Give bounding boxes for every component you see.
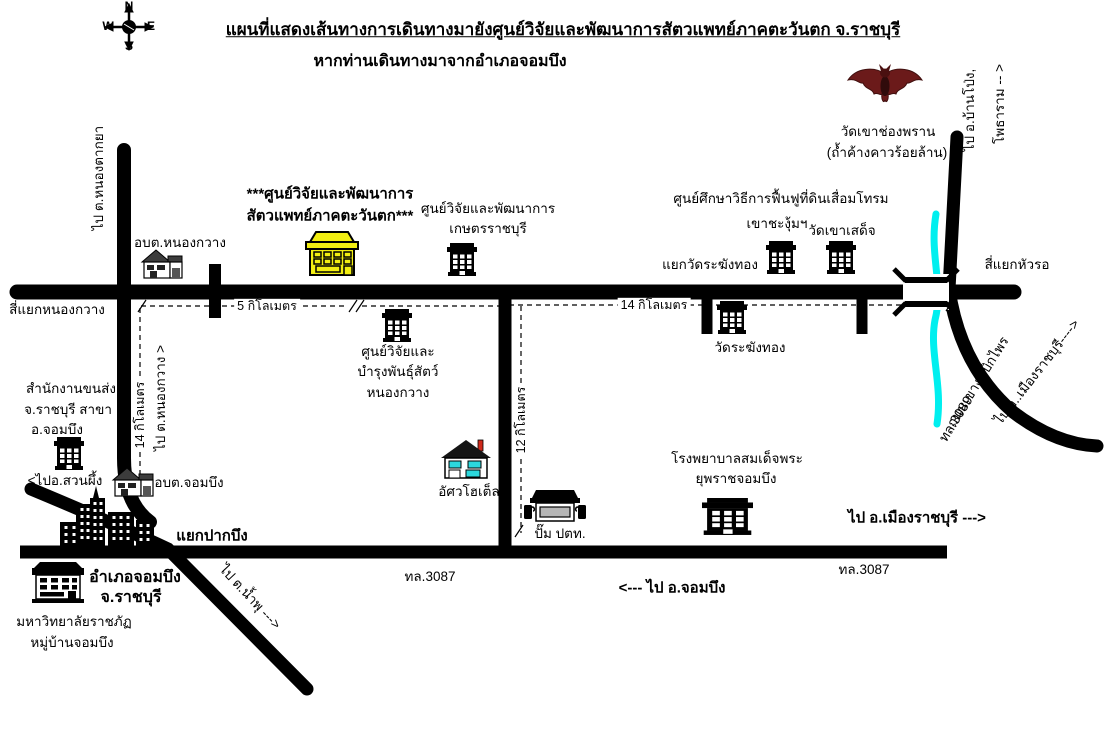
ptt-gas-station-icon xyxy=(524,490,586,521)
livestock-center-label-line2: บำรุงพันธุ์สัตว์ xyxy=(358,364,439,380)
nongkwang-intersection-label: สี่แยกหนองกวาง xyxy=(9,302,105,318)
direction-chombung-label: <--- ไป อ.จอมบึง xyxy=(619,579,726,596)
compass-south-label: S xyxy=(125,40,133,54)
compass-west-label: W xyxy=(102,20,113,34)
vet-center-building-icon xyxy=(306,232,358,275)
compass-north-label: N xyxy=(125,0,134,14)
wat-rakang-building-icon xyxy=(717,301,747,334)
vet-center-label-line1: ***ศูนย์วิจัยและพัฒนาการ xyxy=(247,185,414,202)
wat-rakang-junction-label: แยกวัดระฆังทอง xyxy=(662,257,758,273)
wat-chong-phran-label-line2: (ถ้ำค้างคาวร้อยล้าน) xyxy=(827,145,948,161)
khao-changum-label: เขาชะงุ้มฯ xyxy=(747,216,808,232)
highway-3087-left-label: ทล.3087 xyxy=(405,569,456,585)
distance-5km-label: 5 กิโลเมตร xyxy=(234,299,300,313)
kaset-center-label-line2: เกษตรราชบุรี xyxy=(449,221,527,237)
vet-center-label-line2: สัตวแพทย์ภาคตะวันตก*** xyxy=(247,207,414,224)
direction-banpong-label: ไป อ.บ้านโป่ง, xyxy=(962,69,978,152)
route-map: แผนที่แสดงเส้นทางการเดินทางมายังศูนย์วิจ… xyxy=(0,0,1113,736)
wat-chong-phran-label-line1: วัดเขาช่องพราน xyxy=(841,124,936,140)
transport-office-label-line3: อ.จอมบึง xyxy=(31,422,83,438)
university-label-line2: หมู่บ้านจอมบึง xyxy=(30,635,113,651)
ptt-pump-label: ปั๊ม ปตท. xyxy=(534,526,585,542)
wat-khao-sadet-building-icon xyxy=(826,241,856,274)
transport-office-label-line1: สำนักงานขนส่ง xyxy=(26,381,116,397)
bat-icon xyxy=(848,64,922,102)
river-line xyxy=(933,214,938,424)
direction-nongtakya-label: ไป ต.หนองตากยา xyxy=(91,126,107,230)
transport-office-building-icon xyxy=(54,437,84,470)
distance-12km-label: 12 กิโลเมตร xyxy=(514,384,528,457)
map-subtitle: หากท่านเดินทางมาจากอำเภอจอมบึง xyxy=(313,53,566,71)
hospital-building-icon xyxy=(702,498,753,535)
abt-chombung-label: อบต.จอมบึง xyxy=(154,475,223,491)
asava-hotel-house-icon xyxy=(441,440,491,478)
distance-14km-west-label: 14 กิโลเมตร xyxy=(133,379,147,452)
wat-rakang-label: วัดระฆังทอง xyxy=(714,340,785,356)
livestock-center-label-line1: ศูนย์วิจัยและ xyxy=(361,344,434,360)
kaset-center-building-icon xyxy=(447,243,477,276)
direction-suanphueng-label: <ไปอ.สวนผึ้ง xyxy=(28,473,103,489)
kaset-center-label-line1: ศูนย์วิจัยและพัฒนาการ xyxy=(421,201,555,217)
hospital-label-line1: โรงพยาบาลสมเด็จพระ xyxy=(671,451,803,467)
distance-14km-main-label: 14 กิโลเมตร xyxy=(618,298,691,312)
pakbung-junction-label: แยกปากบึง xyxy=(176,527,247,544)
direction-photharam-label: โพธาราม -- > xyxy=(992,64,1008,144)
wat-khao-sadet-label: วัดเขาเสด็จ xyxy=(808,223,875,239)
livestock-center-label-line3: หนองกวาง xyxy=(367,385,430,401)
amphoe-chombung-building-icon xyxy=(32,562,84,603)
highway-3087-right-label: ทล.3087 xyxy=(839,562,890,578)
abt-nongkwang-label: อบต.หนองกวาง xyxy=(134,235,226,251)
compass-east-label: E xyxy=(147,20,155,34)
university-label-line1: มหาวิทยาลัยราชภัฏ xyxy=(16,614,132,630)
hospital-label-line2: ยุพราชจอมบึง xyxy=(696,471,777,487)
amphoe-chombung-label-line1: อำเภอจอมบึง xyxy=(89,569,181,587)
khao-changum-building-icon xyxy=(766,241,796,274)
map-title: แผนที่แสดงเส้นทางการเดินทางมายังศูนย์วิจ… xyxy=(226,20,900,40)
direction-nongkwang-label: ไป ต.หนองกวาง > xyxy=(153,345,169,451)
transport-office-label-line2: จ.ราชบุรี สาขา xyxy=(24,402,112,418)
road-left-vertical xyxy=(124,150,150,522)
asava-hotel-label: อัศวโฮเต็ล xyxy=(438,484,499,500)
land-rehab-center-label: ศูนย์ศึกษาวิธีการฟื้นฟูที่ดินเสื่อมโทรม xyxy=(673,191,888,207)
livestock-center-building-icon xyxy=(382,309,412,342)
amphoe-chombung-label-line2: จ.ราชบุรี xyxy=(100,589,161,607)
huaro-intersection-label: สี่แยกหัวรอ xyxy=(985,257,1050,273)
direction-muang-ratchaburi-label: ไป อ.เมืองราชบุรี ---> xyxy=(848,509,986,526)
abt-nongkwang-house-icon xyxy=(142,250,182,278)
